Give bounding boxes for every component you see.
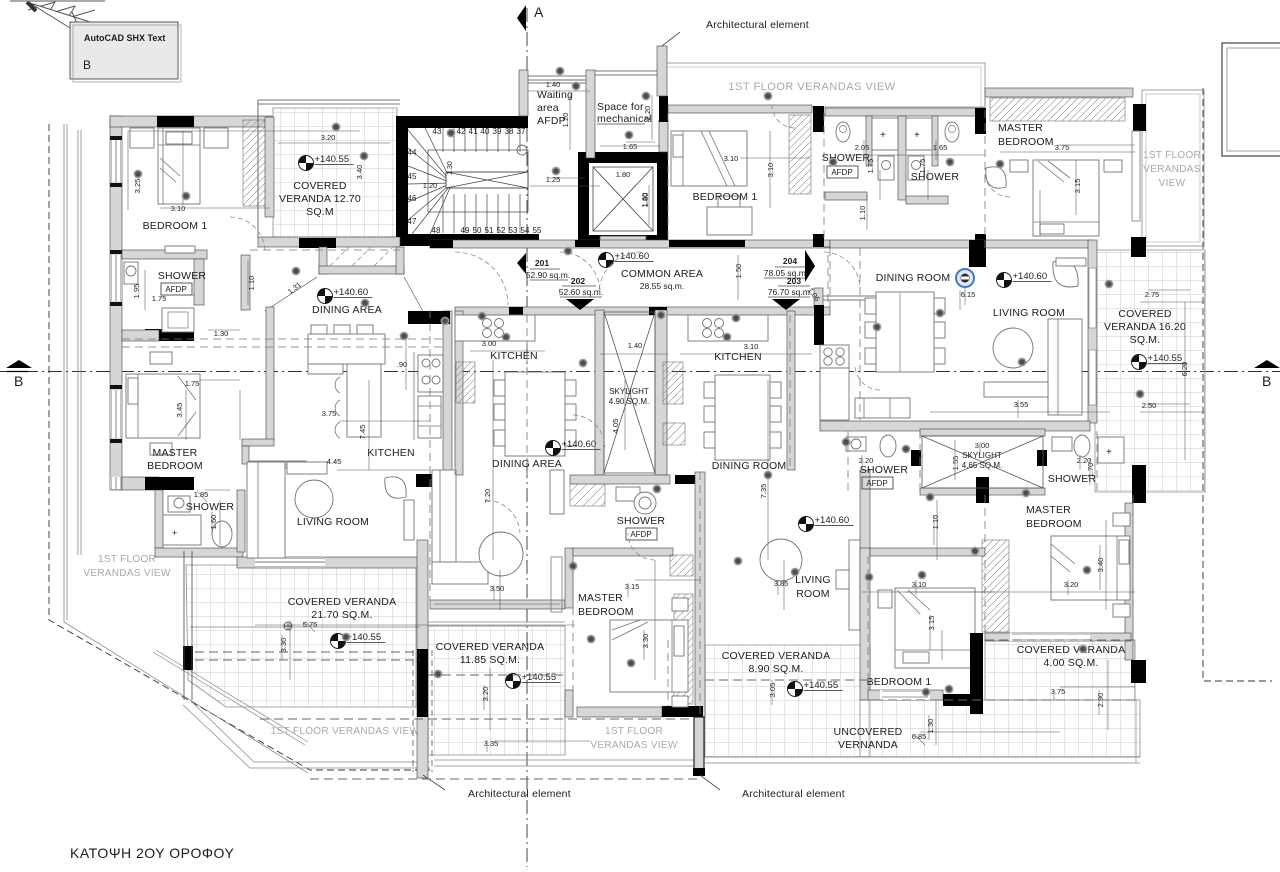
svg-text:39: 39 — [493, 127, 502, 136]
svg-text:VERANDA 16.20: VERANDA 16.20 — [1104, 321, 1186, 333]
svg-text:BEDROOM 1: BEDROOM 1 — [693, 191, 758, 203]
svg-text:AFDP: AFDP — [165, 285, 186, 294]
svg-text:MASTER: MASTER — [1026, 504, 1071, 516]
svg-text:SHOWER: SHOWER — [617, 515, 666, 527]
svg-text:BEDROOM: BEDROOM — [578, 606, 634, 618]
svg-text:2.20: 2.20 — [643, 106, 652, 121]
svg-text:+140.60: +140.60 — [815, 515, 850, 526]
svg-text:DINING AREA: DINING AREA — [312, 304, 382, 316]
svg-text:LIVING ROOM: LIVING ROOM — [993, 307, 1065, 319]
svg-text:3.20: 3.20 — [481, 687, 490, 702]
svg-text:11.85 SQ.M.: 11.85 SQ.M. — [460, 654, 520, 666]
svg-text:204: 204 — [783, 256, 797, 266]
svg-text:4.45: 4.45 — [327, 457, 342, 466]
svg-text:3.75: 3.75 — [1055, 143, 1070, 152]
svg-text:47: 47 — [408, 217, 417, 226]
svg-text:48: 48 — [432, 226, 441, 235]
svg-text:1.75: 1.75 — [185, 379, 200, 388]
svg-text:LIVING ROOM: LIVING ROOM — [297, 516, 369, 528]
svg-text:43: 43 — [433, 127, 442, 136]
svg-text:+140.55: +140.55 — [315, 154, 350, 165]
svg-text:3.50: 3.50 — [490, 584, 505, 593]
svg-text:SHOWER: SHOWER — [860, 464, 909, 476]
svg-text:1.85: 1.85 — [194, 490, 209, 499]
svg-text:+140.55: +140.55 — [522, 672, 557, 683]
svg-text:4.05: 4.05 — [611, 419, 620, 434]
svg-text:COVERED VERANDA: COVERED VERANDA — [722, 650, 831, 662]
svg-text:DINING ROOM: DINING ROOM — [712, 460, 787, 472]
svg-text:VERANDA 12.70: VERANDA 12.70 — [279, 193, 361, 205]
svg-text:7.45: 7.45 — [358, 425, 367, 440]
svg-text:AFDP: AFDP — [630, 530, 651, 539]
svg-text:KITCHEN: KITCHEN — [714, 351, 762, 363]
svg-text:53: 53 — [509, 226, 518, 235]
svg-text:3.00: 3.00 — [482, 339, 497, 348]
svg-text:2.75: 2.75 — [1145, 290, 1160, 299]
svg-text:1.30: 1.30 — [447, 161, 454, 175]
svg-text:SHOWER: SHOWER — [186, 501, 235, 513]
svg-text:1ST FLOOR: 1ST FLOOR — [98, 554, 156, 565]
svg-text:MASTER: MASTER — [998, 122, 1043, 134]
svg-text:38: 38 — [505, 127, 514, 136]
svg-text:VERANDAS: VERANDAS — [1143, 164, 1200, 175]
svg-text:6.85: 6.85 — [912, 732, 927, 741]
svg-text:UNCOVERED: UNCOVERED — [834, 726, 903, 738]
svg-text:3.05: 3.05 — [768, 683, 777, 698]
svg-text:+140.60: +140.60 — [334, 287, 369, 298]
svg-text:AFDP: AFDP — [866, 479, 887, 488]
svg-text:3.75: 3.75 — [322, 409, 337, 418]
svg-text:3.15: 3.15 — [625, 582, 640, 591]
svg-text:3.10: 3.10 — [912, 580, 927, 589]
svg-text:3.20: 3.20 — [321, 133, 336, 142]
svg-text:1ST FLOOR VERANDAS VIEW: 1ST FLOOR VERANDAS VIEW — [728, 81, 895, 93]
svg-text:BEDROOM: BEDROOM — [998, 136, 1054, 148]
svg-text:1.20: 1.20 — [561, 113, 570, 128]
svg-text:AutoCAD SHX Text: AutoCAD SHX Text — [84, 33, 165, 43]
svg-text:COMMON AREA: COMMON AREA — [621, 268, 703, 280]
svg-text:1.75: 1.75 — [866, 159, 875, 174]
svg-text:46: 46 — [408, 194, 417, 203]
svg-text:3.85: 3.85 — [774, 579, 789, 588]
svg-text:3.00: 3.00 — [975, 441, 990, 450]
svg-text:1ST FLOOR: 1ST FLOOR — [605, 726, 663, 737]
svg-text:+: + — [172, 528, 177, 538]
svg-text:1.65: 1.65 — [623, 142, 638, 151]
svg-text:28.55 sq.m.: 28.55 sq.m. — [640, 281, 684, 291]
svg-text:3.30: 3.30 — [279, 638, 288, 653]
svg-text:+: + — [1106, 447, 1112, 458]
svg-text:Space for: Space for — [597, 101, 644, 113]
svg-text:.90: .90 — [397, 360, 407, 369]
svg-text:8.90 SQ.M.: 8.90 SQ.M. — [748, 663, 803, 675]
svg-text:4.65 SQ.M.: 4.65 SQ.M. — [962, 461, 1002, 470]
svg-text:1.60: 1.60 — [640, 193, 649, 208]
svg-text:1.60: 1.60 — [209, 515, 218, 530]
svg-text:50: 50 — [473, 226, 482, 235]
svg-text:+140.55: +140.55 — [347, 632, 382, 643]
svg-text:LIVING: LIVING — [795, 574, 831, 586]
svg-text:ΚΑΤΟΨΗ 2ΟΥ ΟΡΟΦΟΥ: ΚΑΤΟΨΗ 2ΟΥ ΟΡΟΦΟΥ — [70, 845, 234, 861]
svg-text:Architectural element: Architectural element — [742, 788, 845, 800]
svg-text:6.15: 6.15 — [961, 290, 976, 299]
svg-text:1.50: 1.50 — [734, 264, 743, 279]
svg-text:1.75: 1.75 — [918, 159, 927, 174]
svg-text:4.00 SQ.M.: 4.00 SQ.M. — [1043, 657, 1098, 669]
svg-text:1.55: 1.55 — [951, 456, 960, 471]
svg-text:3.35: 3.35 — [484, 739, 499, 748]
svg-text:52.90 sq.m.: 52.90 sq.m. — [526, 270, 570, 280]
svg-text:+140.60: +140.60 — [562, 439, 597, 450]
svg-text:203: 203 — [787, 276, 801, 286]
svg-text:1.30: 1.30 — [214, 329, 229, 338]
svg-text:3.15: 3.15 — [1073, 179, 1082, 194]
svg-text:21.70 SQ.M.: 21.70 SQ.M. — [311, 609, 372, 621]
svg-text:1.20: 1.20 — [423, 181, 438, 190]
svg-text:KITCHEN: KITCHEN — [367, 447, 415, 459]
svg-text:MASTER: MASTER — [153, 447, 198, 459]
svg-text:COVERED VERANDA: COVERED VERANDA — [288, 596, 397, 608]
svg-text:SQ.M.: SQ.M. — [1130, 334, 1161, 346]
svg-text:3.40: 3.40 — [1096, 558, 1105, 573]
svg-text:44: 44 — [408, 148, 417, 157]
svg-text:VIEW: VIEW — [1159, 178, 1186, 189]
svg-text:VERANDAS VIEW: VERANDAS VIEW — [590, 740, 678, 751]
svg-text:1.80: 1.80 — [616, 170, 631, 179]
svg-text:3.75: 3.75 — [1051, 687, 1066, 696]
svg-text:52.60 sq.m.: 52.60 sq.m. — [559, 287, 603, 297]
svg-text:7.35: 7.35 — [759, 484, 768, 499]
svg-text:+140.60: +140.60 — [1013, 271, 1048, 282]
svg-text:SKYLIGHT: SKYLIGHT — [962, 451, 1002, 460]
svg-text:40: 40 — [481, 127, 490, 136]
svg-text:3.40: 3.40 — [355, 165, 364, 180]
svg-text:1.10: 1.10 — [858, 206, 867, 221]
svg-text:BEDROOM 1: BEDROOM 1 — [867, 676, 932, 688]
svg-text:B: B — [1262, 373, 1271, 389]
svg-text:BEDROOM 1: BEDROOM 1 — [143, 220, 208, 232]
svg-text:3.10: 3.10 — [724, 154, 739, 163]
svg-text:Architectural element: Architectural element — [706, 19, 809, 31]
svg-text:2.50: 2.50 — [1142, 401, 1157, 410]
svg-text:3.10: 3.10 — [171, 204, 186, 213]
svg-text:+: + — [880, 130, 886, 141]
svg-text:ROOM: ROOM — [796, 588, 829, 600]
svg-text:3.55: 3.55 — [1014, 400, 1029, 409]
svg-text:COVERED VERANDA: COVERED VERANDA — [1017, 644, 1126, 656]
svg-text:+140.55: +140.55 — [804, 680, 839, 691]
svg-text:6.20: 6.20 — [1180, 362, 1189, 377]
svg-text:1.10: 1.10 — [931, 515, 940, 530]
svg-text:3.30: 3.30 — [641, 634, 650, 649]
svg-text:42: 42 — [457, 127, 466, 136]
svg-text:1.95: 1.95 — [132, 284, 141, 299]
svg-text:AFDP: AFDP — [831, 168, 852, 177]
svg-text:DINING ROOM: DINING ROOM — [876, 272, 951, 284]
svg-text:Architectural element: Architectural element — [468, 788, 571, 800]
svg-text:3.15: 3.15 — [927, 616, 936, 631]
svg-text:COVERED: COVERED — [1118, 308, 1172, 320]
svg-text:1ST FLOOR: 1ST FLOOR — [1143, 150, 1201, 161]
svg-text:1.40: 1.40 — [546, 80, 561, 89]
svg-text:2.20: 2.20 — [859, 456, 874, 465]
svg-text:BEDROOM: BEDROOM — [147, 460, 203, 472]
svg-text:54: 54 — [521, 226, 530, 235]
svg-text:COVERED VERANDA: COVERED VERANDA — [436, 641, 545, 653]
svg-text:2.05: 2.05 — [855, 143, 870, 152]
svg-text:1.30: 1.30 — [926, 719, 935, 734]
svg-text:KITCHEN: KITCHEN — [490, 350, 538, 362]
svg-text:SQ.M: SQ.M — [306, 206, 334, 218]
svg-text:3.45: 3.45 — [175, 403, 184, 418]
svg-text:A: A — [534, 4, 544, 20]
svg-text:BEDROOM: BEDROOM — [1026, 518, 1082, 530]
svg-text:COVERED: COVERED — [293, 180, 347, 192]
svg-text:52: 52 — [497, 226, 506, 235]
svg-text:1.65: 1.65 — [933, 143, 948, 152]
svg-text:5.75: 5.75 — [303, 620, 318, 629]
svg-text:VERNANDA: VERNANDA — [838, 739, 898, 751]
svg-text:51: 51 — [485, 226, 494, 235]
svg-text:1.25: 1.25 — [546, 175, 561, 184]
svg-text:76.70 sq.m.: 76.70 sq.m. — [768, 287, 812, 297]
svg-text:VERANDAS VIEW: VERANDAS VIEW — [83, 568, 171, 579]
svg-text:3.25: 3.25 — [133, 179, 142, 194]
svg-text:3.20: 3.20 — [1064, 580, 1079, 589]
svg-text:area: area — [537, 102, 559, 114]
svg-text:MASTER: MASTER — [578, 592, 623, 604]
svg-text:55: 55 — [533, 226, 542, 235]
svg-text:B: B — [83, 58, 91, 72]
svg-text:201: 201 — [535, 258, 549, 268]
svg-text:41: 41 — [469, 127, 478, 136]
svg-text:4.90 SQ.M.: 4.90 SQ.M. — [609, 397, 649, 406]
svg-text:+140.55: +140.55 — [1148, 353, 1183, 364]
svg-text:7.20: 7.20 — [483, 489, 492, 504]
svg-text:1.75: 1.75 — [152, 294, 167, 303]
svg-text:B: B — [14, 373, 23, 389]
svg-text:+: + — [914, 130, 920, 141]
svg-text:SHOWER: SHOWER — [158, 270, 207, 282]
svg-text:1.40: 1.40 — [628, 341, 643, 350]
svg-text:202: 202 — [571, 276, 585, 286]
svg-text:45: 45 — [408, 172, 417, 181]
svg-text:49: 49 — [461, 226, 470, 235]
svg-text:37: 37 — [517, 127, 526, 136]
svg-text:1.10: 1.10 — [247, 276, 256, 291]
svg-text:SKYLIGHT: SKYLIGHT — [609, 387, 649, 396]
svg-text:3.10: 3.10 — [766, 163, 775, 178]
svg-text:1ST FLOOR VERANDAS VIEW: 1ST FLOOR VERANDAS VIEW — [271, 726, 420, 737]
svg-text:3.10: 3.10 — [744, 342, 759, 351]
svg-text:1.70: 1.70 — [1086, 463, 1095, 478]
